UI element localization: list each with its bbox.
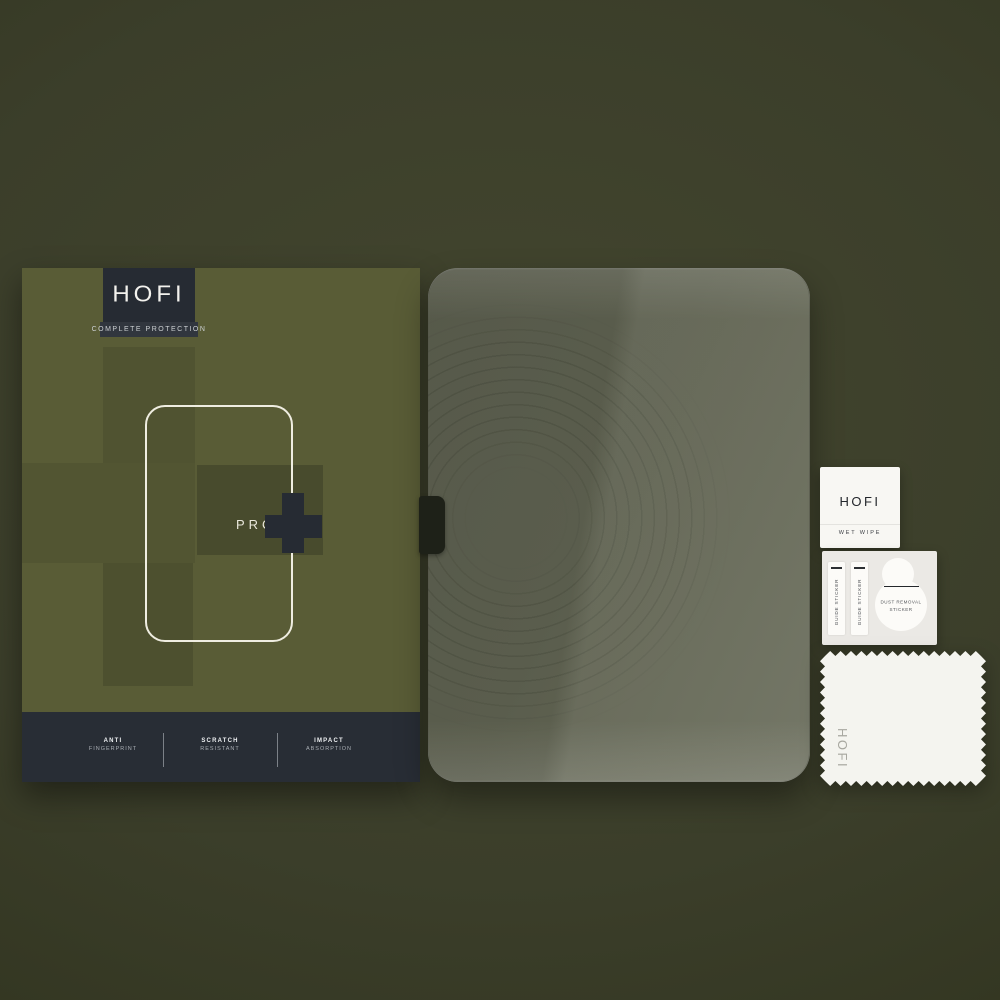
guide-sticker-cut-line <box>854 567 865 569</box>
feature-bar: ANTI FINGERPRINT SCRATCH RESISTANT IMPAC… <box>22 712 420 782</box>
brand-logo-panel: HOFI <box>103 268 195 322</box>
guide-sticker-label: GUIDE STICKER <box>834 579 839 626</box>
feature-item: IMPACT ABSORPTION <box>306 738 352 752</box>
product-scene: HOFI COMPLETE PROTECTION PRO ANTI FINGER… <box>0 0 1000 1000</box>
guide-sticker-cut-line <box>831 567 842 569</box>
dust-removal-label: DUST REMOVAL STICKER <box>866 599 936 614</box>
wet-wipe-divider <box>820 524 900 525</box>
brand-logo: HOFI <box>112 282 185 309</box>
tagline-bar: COMPLETE PROTECTION <box>100 322 198 337</box>
sticker-sheet: DUST REMOVAL STICKER GUIDE STICKER GUIDE… <box>822 551 937 645</box>
wet-wipe-brand: HOFI <box>820 494 900 509</box>
glass-sheen <box>428 268 810 782</box>
pull-tab <box>419 496 445 554</box>
dust-removal-cut-line <box>884 586 919 587</box>
feature-item: SCRATCH RESISTANT <box>200 738 239 752</box>
wet-wipe-label: WET WIPE <box>823 530 897 536</box>
feature-item: ANTI FINGERPRINT <box>89 738 137 752</box>
cloth-brand: HOFI <box>835 728 850 769</box>
tagline: COMPLETE PROTECTION <box>92 326 207 333</box>
microfiber-cloth-wrap: HOFI <box>820 651 986 786</box>
feature-separator <box>163 733 164 767</box>
glass-surface <box>428 268 810 782</box>
feature-separator <box>277 733 278 767</box>
product-box: HOFI COMPLETE PROTECTION PRO ANTI FINGER… <box>22 268 420 782</box>
guide-sticker-strip: GUIDE STICKER <box>851 562 868 635</box>
wet-wipe-packet: HOFI WET WIPE <box>820 467 900 548</box>
screen-protector <box>428 268 810 782</box>
guide-sticker-label: GUIDE STICKER <box>857 579 862 626</box>
microfiber-cloth: HOFI <box>820 651 986 786</box>
guide-sticker-strip: GUIDE STICKER <box>828 562 845 635</box>
